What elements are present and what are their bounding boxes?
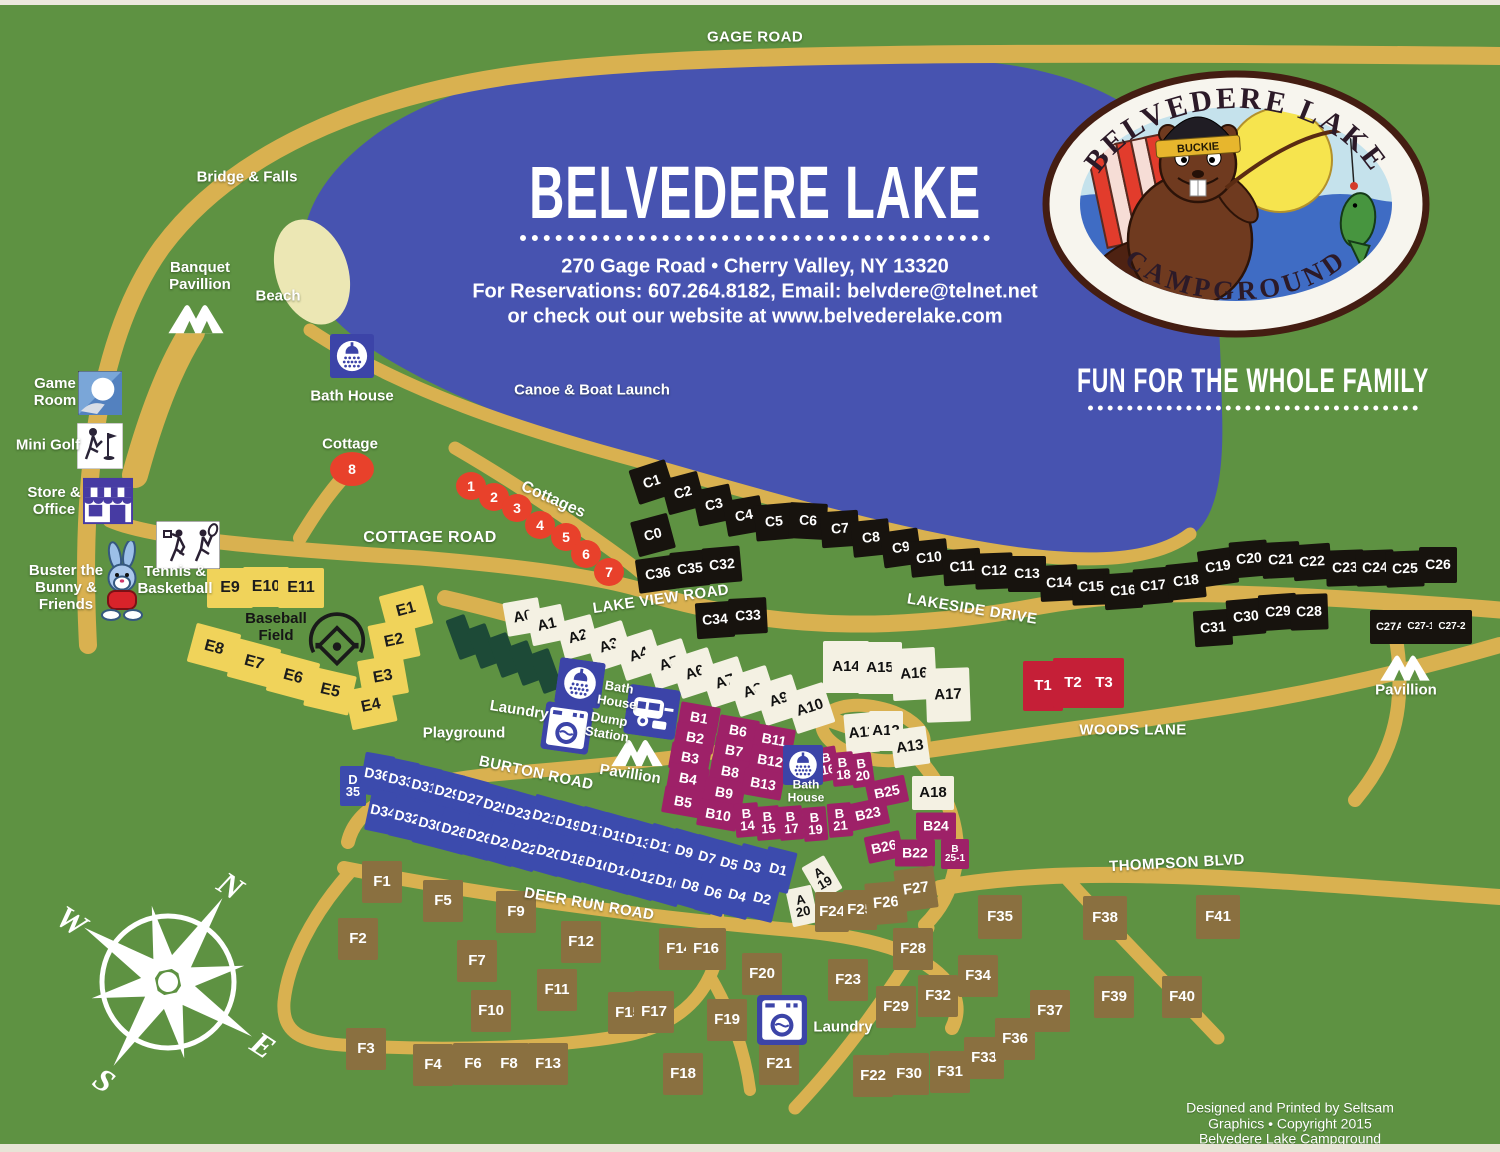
site-F39: F39 <box>1094 976 1134 1018</box>
site-F29: F29 <box>876 986 916 1028</box>
site-F34: F34 <box>958 955 998 997</box>
map-label-tennis-: Tennis & Basketball <box>137 564 212 598</box>
compass-s: S <box>87 1060 122 1100</box>
site-B-25-1: B 25-1 <box>941 839 969 869</box>
washer-icon <box>757 995 807 1045</box>
site-F2: F2 <box>338 918 378 960</box>
map-title: BELVEDERE LAKE <box>450 154 1061 230</box>
tent-icon <box>1379 649 1431 685</box>
map-label-playground: Playground <box>423 726 506 743</box>
site-B22: B22 <box>895 840 935 867</box>
map-label-laundry: Laundry <box>813 1020 872 1037</box>
store-icon <box>81 476 135 526</box>
site-F20: F20 <box>742 953 782 995</box>
site-F32: F32 <box>918 975 958 1017</box>
map-label-banquet: Banquet Pavillion <box>169 260 231 294</box>
site-F7: F7 <box>457 940 497 982</box>
site-F17: F17 <box>634 991 674 1033</box>
bottom-edge <box>0 1144 1500 1152</box>
reservations-line: For Reservations: 607.264.8182, Email: b… <box>472 281 1037 304</box>
map-label-bath-house: Bath House <box>310 389 393 406</box>
tagline-dots <box>1088 406 1418 411</box>
site-E11: E11 <box>278 568 324 608</box>
map-label-cottage: Cottage <box>322 437 378 454</box>
site-F18: F18 <box>663 1053 703 1095</box>
minigolf-icon <box>77 423 123 469</box>
map-label-gage-road: GAGE ROAD <box>707 30 803 47</box>
site-F6: F6 <box>453 1043 493 1085</box>
site-F8: F8 <box>489 1043 529 1085</box>
website-line: or check out our website at www.belveder… <box>508 306 1003 329</box>
site-F11: F11 <box>537 969 577 1011</box>
map-label-store-: Store & Office <box>27 485 80 519</box>
site-B-17: B 17 <box>778 805 805 841</box>
map-label-mini-golf: Mini Golf <box>16 438 80 455</box>
site-F40: F40 <box>1162 976 1202 1018</box>
address-line: 270 Gage Road • Cherry Valley, NY 13320 <box>561 256 949 279</box>
site-T3: T3 <box>1084 658 1124 708</box>
map-label-baseball: Baseball Field <box>245 611 307 645</box>
cottage-8: 8 <box>330 452 374 486</box>
site-F35: F35 <box>978 895 1022 939</box>
gameroom-icon <box>78 371 122 415</box>
site-F41: F41 <box>1196 895 1240 939</box>
site-F30: F30 <box>889 1053 929 1095</box>
map-label-bath: Bath House <box>788 779 825 806</box>
map-label-cottage-road: COTTAGE ROAD <box>363 529 496 547</box>
site-F22: F22 <box>853 1055 893 1097</box>
site-F5: F5 <box>423 880 463 922</box>
tennis-basketball-icon <box>156 521 220 569</box>
site-C28: C28 <box>1289 593 1328 630</box>
site-F13: F13 <box>528 1043 568 1085</box>
site-C27-2: C27-2 <box>1432 610 1472 644</box>
map-label-woods-lane: WOODS LANE <box>1079 723 1186 740</box>
site-F27: F27 <box>893 865 938 912</box>
map-label-bath: Bath House <box>596 678 640 713</box>
tent-icon <box>167 298 225 338</box>
top-edge <box>0 0 1500 5</box>
site-A17: A17 <box>925 667 971 723</box>
site-F12: F12 <box>561 921 601 963</box>
compass-n: N <box>210 864 251 908</box>
site-F37: F37 <box>1030 990 1070 1032</box>
site-C33: C33 <box>728 597 768 635</box>
site-F23: F23 <box>828 959 868 1001</box>
site-F21: F21 <box>759 1043 799 1085</box>
tagline: FUN FOR THE WHOLE FAMILY <box>1015 363 1491 399</box>
compass-w: W <box>50 898 96 945</box>
site-F1: F1 <box>362 861 402 903</box>
site-F10: F10 <box>471 990 511 1032</box>
site-A13: A13 <box>890 726 931 769</box>
cottage-7: 7 <box>594 558 624 586</box>
map-label-game: Game Room <box>34 376 77 410</box>
campground-map: N E S W BELVEDERE LAKE 270 Gage Road • C… <box>0 0 1500 1152</box>
campground-logo: BUCKIE BELVEDERE LAKE CAMPGROUND <box>1040 68 1432 340</box>
bathhouse-icon <box>330 334 374 378</box>
site-F36: F36 <box>995 1018 1035 1060</box>
title-dots <box>520 235 990 241</box>
map-label-canoe-boat-launch: Canoe & Boat Launch <box>514 383 670 400</box>
site-A18: A18 <box>912 776 954 810</box>
site-F28: F28 <box>893 928 933 970</box>
map-label-beach: Beach <box>255 289 300 306</box>
site-B-19: B 19 <box>802 806 829 842</box>
map-label-bridge-falls: Bridge & Falls <box>197 170 298 187</box>
compass-e: E <box>243 1023 281 1065</box>
site-C26: C26 <box>1419 547 1457 583</box>
site-C32: C32 <box>702 545 743 584</box>
map-label-buster-the: Buster the Bunny & Friends <box>29 563 103 613</box>
map-label-pavillion: Pavillion <box>1375 683 1437 700</box>
site-F19: F19 <box>707 999 747 1041</box>
map-label-designed-and-printed-by-seltsam-graphics-copyright-2015-belvedere-lake-campground: Designed and Printed by Seltsam Graphics… <box>1185 1100 1395 1147</box>
site-F16: F16 <box>686 928 726 970</box>
site-F38: F38 <box>1083 896 1127 940</box>
site-F4: F4 <box>413 1044 453 1086</box>
site-B24: B24 <box>916 813 956 840</box>
site-F3: F3 <box>346 1028 386 1070</box>
baseball-field-icon <box>303 611 371 671</box>
